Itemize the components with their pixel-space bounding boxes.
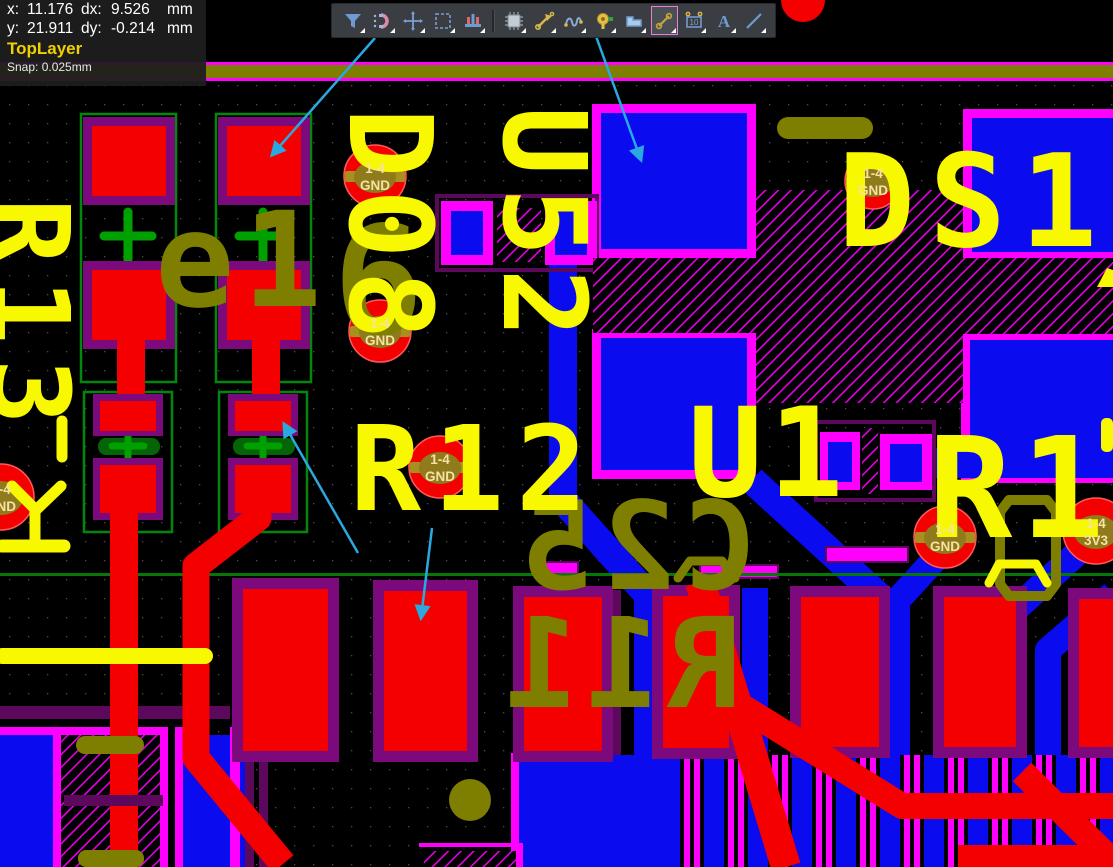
pad-tool-button[interactable] [460, 6, 487, 35]
coord-row-x: x: 11.176 dx: 9.526 mm [0, 0, 206, 19]
text-icon: A [713, 10, 735, 32]
smd-pad[interactable] [243, 589, 328, 751]
filter-tool-button[interactable] [340, 6, 367, 35]
coord-row-y: y: 21.911 dy: -0.214 mm [0, 19, 206, 38]
refdes-r13-rotated[interactable]: R13 [0, 198, 93, 439]
line-icon [743, 10, 765, 32]
refdes-r12[interactable]: R12 [350, 400, 599, 538]
dimension-icon-label: 10 [690, 18, 699, 27]
dimension-icon: 10 [683, 10, 705, 32]
copper-pour-tool-button[interactable] [621, 6, 648, 35]
via-label: GND [0, 499, 16, 514]
place-component-button[interactable] [501, 6, 528, 35]
via-label: GND [425, 469, 455, 484]
via-label: GND [360, 178, 390, 193]
text-tool-button[interactable]: A [711, 6, 738, 35]
pcb-canvas[interactable]: e1 6 C25 R11 R12 U1 DS1. R1 R13 D08 U52 [0, 0, 1113, 867]
route-tool-button[interactable] [531, 6, 558, 35]
text-icon-label: A [718, 12, 731, 31]
via-icon [593, 10, 615, 32]
dimension-tool-button[interactable]: 10 [681, 6, 708, 35]
measure-icon [653, 10, 675, 32]
active-layer-indicator[interactable]: TopLayer [0, 38, 206, 59]
snap-setting[interactable]: Snap: 0.025mm [0, 59, 206, 76]
cursor-status-panel: x: 11.176 dx: 9.526 mm y: 21.911 dy: -0.… [0, 0, 206, 86]
via-label: GND [858, 183, 888, 198]
via-label: 1-4 [370, 316, 390, 331]
marquee-icon [432, 10, 454, 32]
dy-value: -0.214 [111, 20, 167, 38]
refdes-e1[interactable]: e1 [155, 184, 330, 338]
dx-label: dx: [81, 1, 111, 19]
pad-array-icon [462, 10, 484, 32]
drawing-toolbar: 10 A [331, 3, 776, 38]
line-tool-button[interactable] [741, 6, 768, 35]
magnet-icon [372, 10, 394, 32]
via-label: 3V3 [1084, 533, 1109, 548]
via-label: 1-4 [365, 161, 385, 176]
filter-icon [342, 10, 364, 32]
tune-length-tool-button[interactable] [561, 6, 588, 35]
crosshair-tool-button[interactable] [400, 6, 427, 35]
crosshair-icon [402, 10, 424, 32]
glyph-col-u[interactable]: U52 [476, 106, 610, 350]
select-area-tool-button[interactable] [430, 6, 457, 35]
refdes-ds1[interactable]: DS1. [838, 128, 1113, 277]
meander-icon [563, 10, 585, 32]
refdes-u1[interactable]: U1 [688, 382, 849, 526]
dx-value: 9.526 [111, 1, 167, 19]
copper-pour-icon [623, 10, 645, 32]
via-label: GND [365, 333, 395, 348]
dy-unit: mm [167, 20, 197, 38]
smd-pad[interactable] [1079, 599, 1113, 747]
x-label: x: [7, 1, 27, 19]
snap-tool-button[interactable] [370, 6, 397, 35]
route-icon [533, 10, 555, 32]
via-label: 1-4 [1086, 516, 1106, 531]
y-value: 21.911 [27, 20, 81, 38]
smd-pad[interactable] [944, 597, 1016, 747]
via-tool-button[interactable] [591, 6, 618, 35]
measure-tool-button[interactable] [651, 6, 678, 35]
via-label: GND [930, 539, 960, 554]
y-label: y: [7, 20, 27, 38]
via-label: 1-4 [935, 522, 955, 537]
via-label: 1-4 [430, 452, 450, 467]
ic-chip-icon [503, 10, 525, 32]
via-label: 1-4 [0, 482, 11, 497]
dx-unit: mm [167, 1, 197, 19]
blue-pour-bottom[interactable] [519, 755, 673, 867]
refdes-r11-mirrored[interactable]: R11 [498, 592, 742, 737]
smd-pad[interactable] [801, 597, 879, 747]
toolbar-separator [492, 10, 495, 32]
pcb-editor-screen: e1 6 C25 R11 R12 U1 DS1. R1 R13 D08 U52 [0, 0, 1113, 867]
pad-u1-blue-top[interactable] [601, 113, 747, 249]
smd-pad[interactable] [384, 591, 467, 751]
drill-hole-marker [449, 779, 491, 821]
via-label: 1-4 [863, 166, 883, 181]
x-value: 11.176 [27, 1, 81, 19]
dy-label: dy: [81, 20, 111, 38]
